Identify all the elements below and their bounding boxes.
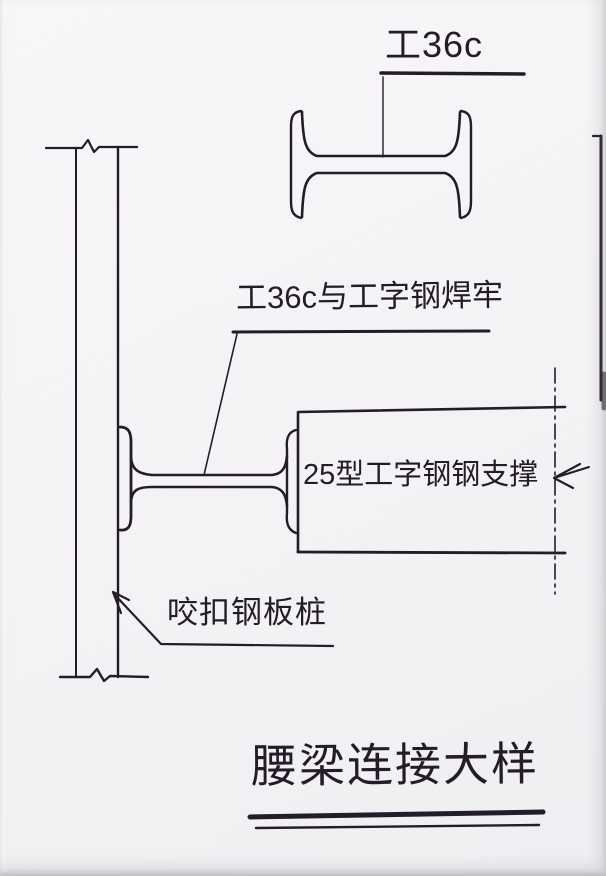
pile-break-mark-top <box>46 140 137 152</box>
waler-beam-profile <box>120 427 296 533</box>
weld-note-underline <box>233 331 489 332</box>
box-bottom-edge <box>298 552 565 553</box>
ibeam-left-flange <box>291 111 301 218</box>
sheet-pile-label: 咬扣钢板桩 <box>167 597 327 628</box>
section-mark-underline <box>381 73 524 74</box>
ibeam-web-bottom <box>302 173 460 217</box>
waler-left-flange <box>120 427 131 530</box>
weld-leader-line <box>204 334 237 475</box>
ibeam-right-flange <box>461 111 471 218</box>
drawing-title: 腰梁连接大样 <box>251 741 539 790</box>
pile-break-mark-bottom <box>60 669 148 681</box>
waler-web-bottom <box>131 487 287 506</box>
waler-web-top <box>131 456 287 475</box>
weld-note-leader <box>204 331 489 475</box>
drawing-sheet: 工36c 工36c与工字钢焊牢 25型工字钢钢支撑 咬扣钢板桩 腰梁连接大样 <box>0 0 606 876</box>
waler-right-flange <box>287 430 296 533</box>
section-mark-label: 工36c <box>385 27 483 63</box>
title-underline <box>250 812 543 828</box>
support-label: 25型工字钢钢支撑 <box>303 461 538 490</box>
ibeam-web-top <box>302 112 460 156</box>
edge-artifact <box>593 136 604 408</box>
top-ibeam-section <box>291 73 524 218</box>
title-underline-thin <box>256 825 539 828</box>
weld-note-label: 工36c与工字钢焊牢 <box>236 280 503 314</box>
title-underline-thick <box>250 812 543 817</box>
sheet-pile <box>46 140 148 681</box>
